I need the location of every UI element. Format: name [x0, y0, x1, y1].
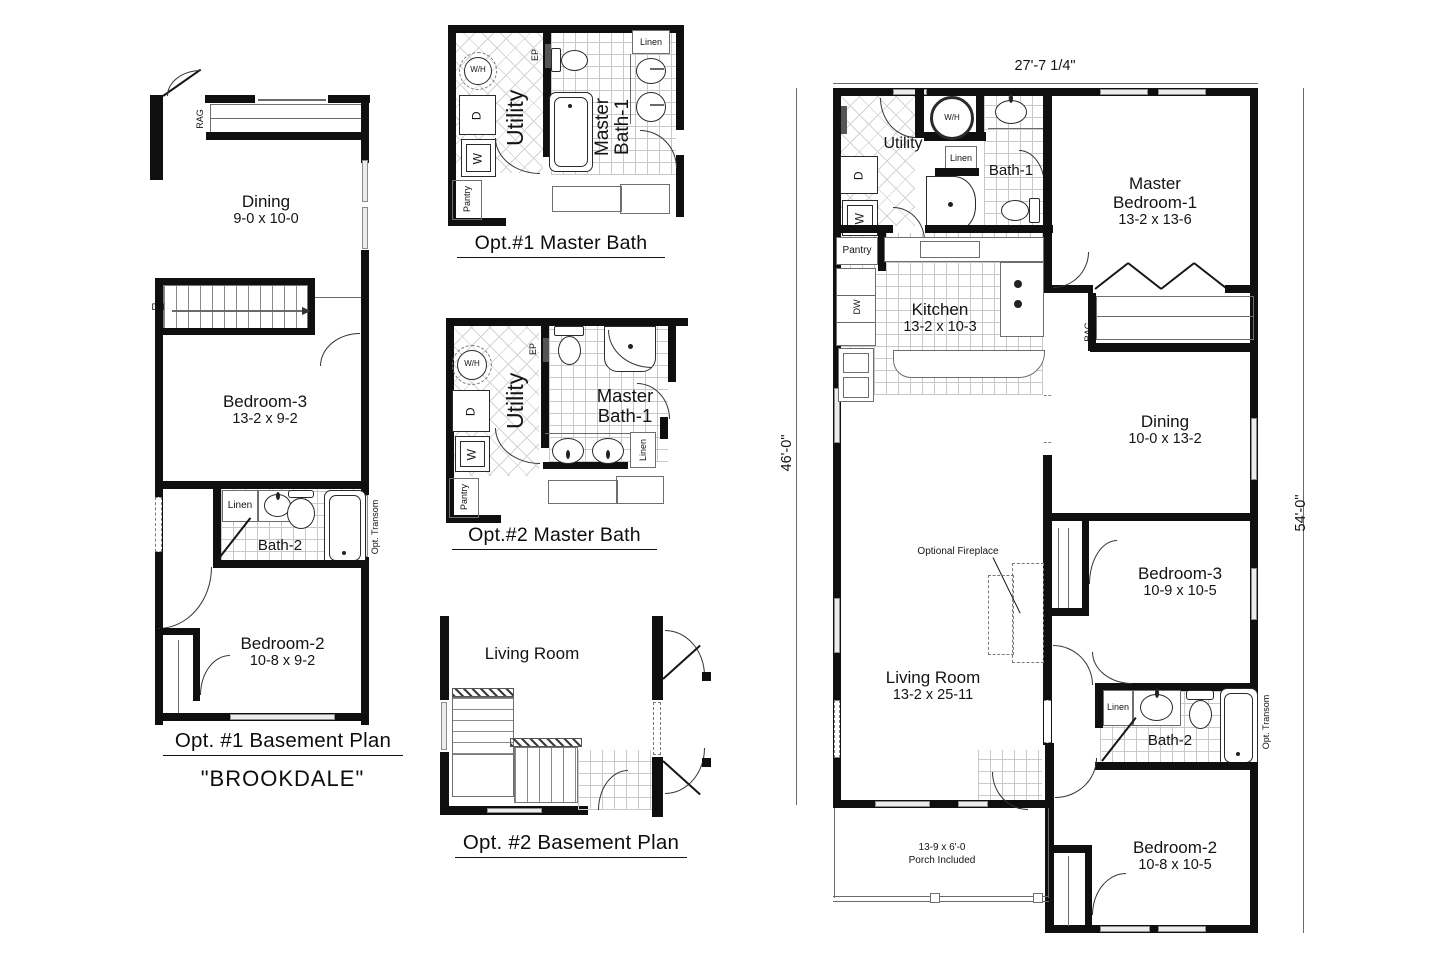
- sink-icon: [636, 92, 666, 122]
- faucet-icon: [276, 492, 280, 500]
- bath2-label: Bath-2: [1135, 733, 1205, 750]
- wall: [150, 95, 163, 180]
- sink-drain-icon: [1014, 280, 1022, 288]
- faucet-icon: [650, 104, 664, 106]
- wall: [1090, 343, 1258, 352]
- door-arc: [158, 567, 212, 629]
- window: [1100, 926, 1150, 932]
- wall: [155, 481, 368, 489]
- dim-line: [833, 83, 1258, 84]
- wall-opening: [834, 700, 840, 758]
- room-dims: 10-8 x 9-2: [215, 653, 350, 669]
- dim-line: [796, 88, 797, 805]
- sink-icon: [636, 58, 666, 84]
- wall-opening: [653, 702, 661, 755]
- stairs: [163, 285, 308, 331]
- wall-opening: [1044, 700, 1051, 743]
- master-bedroom-label: Master Bedroom-1 13-2 x 13-6: [1095, 174, 1215, 228]
- window: [1251, 418, 1257, 480]
- faucet-icon: [606, 450, 610, 459]
- porch-edge: [834, 808, 835, 898]
- wall: [446, 318, 688, 326]
- bifold-door-leaf: [1094, 262, 1128, 289]
- hall-counter: [548, 480, 618, 504]
- wall: [1043, 608, 1089, 616]
- wall: [1095, 688, 1103, 728]
- wall-opening: [1044, 395, 1051, 443]
- room-name-line: Master: [1095, 174, 1215, 193]
- wall: [440, 616, 449, 700]
- window: [834, 598, 840, 653]
- hall-counter: [620, 184, 670, 214]
- mb2-title: Opt.#2 Master Bath: [452, 524, 657, 550]
- room-dims: 9-0 x 10-0: [206, 211, 326, 227]
- door-arc: [1055, 758, 1097, 798]
- counter-line: [630, 54, 631, 124]
- wall: [676, 155, 684, 217]
- fireplace-outline: [988, 575, 1014, 655]
- wall: [205, 95, 255, 103]
- door-arc: [665, 748, 705, 794]
- window: [958, 801, 988, 807]
- wall: [448, 25, 456, 175]
- opt-transom-label: Opt. Transom: [370, 497, 380, 557]
- floor-plan-sheet: RAG Dining 9-0 x 10-0 DN Bedroom-3 13-2 …: [0, 0, 1440, 960]
- faucet-icon: [1155, 688, 1159, 698]
- toilet-icon: [1189, 700, 1212, 729]
- porch-label: 13-9 x 6'-0 Porch Included: [888, 842, 996, 867]
- room-dims: 10-9 x 10-5: [1115, 583, 1245, 599]
- wall: [160, 628, 200, 635]
- room-name-line: Bedroom-1: [1095, 193, 1215, 212]
- hall-counter: [616, 476, 664, 504]
- stairs-arrow-line: [172, 310, 304, 312]
- rag-label: RAG: [195, 102, 205, 136]
- wh-label: W/H: [930, 114, 974, 123]
- living-room-label: Living Room: [472, 644, 592, 663]
- bedroom2-label: Bedroom-2 10-8 x 10-5: [1110, 838, 1240, 873]
- room-name-line: Master: [593, 72, 613, 182]
- wall: [652, 616, 663, 700]
- room-name: Bedroom-2: [215, 634, 350, 653]
- door-jamb: [702, 672, 711, 681]
- door-arc: [1089, 540, 1117, 584]
- window: [230, 714, 335, 720]
- counter-line: [837, 322, 875, 323]
- bath2-label: Bath-2: [245, 538, 315, 555]
- wall: [206, 132, 366, 140]
- bedroom3-label: Bedroom-3 10-9 x 10-5: [1115, 564, 1245, 599]
- room-dims: 10-0 x 13-2: [1105, 431, 1225, 447]
- wall: [1043, 285, 1093, 293]
- dining-room-label: Dining 10-0 x 13-2: [1105, 412, 1225, 447]
- wh-label: W/H: [457, 360, 487, 369]
- wall: [925, 225, 1053, 233]
- toilet-tank-icon: [551, 48, 561, 72]
- bp1-title: Opt. #1 Basement Plan: [163, 729, 403, 756]
- wall: [1250, 88, 1258, 933]
- door-arc: [320, 333, 360, 366]
- counter: [210, 104, 363, 134]
- bedroom3-label: Bedroom-3 13-2 x 9-2: [205, 392, 325, 427]
- wall: [915, 88, 924, 138]
- wall: [543, 462, 628, 469]
- wall: [361, 557, 369, 725]
- counter: [1096, 296, 1254, 340]
- room-dims: 13-2 x 10-3: [885, 319, 995, 335]
- wall: [213, 560, 368, 568]
- toilet-icon: [561, 50, 588, 71]
- dim-right-label: 54'-0": [1293, 483, 1309, 543]
- window: [1100, 89, 1148, 95]
- door-arc: [893, 207, 925, 241]
- bp2-title: Opt. #2 Basement Plan: [455, 831, 687, 858]
- porch-post: [1033, 893, 1043, 903]
- bifold-door-leaf: [1193, 262, 1227, 289]
- dryer-label: D: [470, 106, 483, 126]
- stair-wall-hatch: [510, 738, 582, 747]
- window: [441, 702, 447, 750]
- porch-edge: [1048, 808, 1049, 898]
- wall: [155, 328, 315, 335]
- wall: [935, 168, 979, 176]
- room-name: Dining: [1105, 412, 1225, 431]
- room-dims: 13-2 x 9-2: [205, 411, 325, 427]
- closet-rod: [1068, 528, 1069, 608]
- wall: [1045, 743, 1054, 933]
- window: [362, 160, 368, 202]
- window: [1158, 926, 1206, 932]
- fireplace-outline: [1012, 563, 1044, 663]
- wall: [361, 95, 369, 163]
- electrical-panel-icon: [841, 106, 847, 134]
- wall: [1050, 845, 1092, 853]
- wall: [833, 225, 893, 233]
- wall: [652, 757, 663, 817]
- wh-label: W/H: [464, 66, 492, 75]
- utility-label: Utility: [868, 135, 938, 153]
- tub-drain-icon: [568, 104, 572, 108]
- wall: [361, 250, 369, 495]
- rag-label: RAG: [1083, 317, 1093, 347]
- sink-drain-icon: [1014, 300, 1022, 308]
- faucet-icon: [650, 68, 664, 70]
- bifold-door-leaf: [1127, 262, 1161, 289]
- mb1-title: Opt.#1 Master Bath: [457, 232, 665, 258]
- counter-line: [988, 128, 1044, 129]
- wall: [976, 88, 984, 140]
- sink-icon: [995, 100, 1027, 124]
- dim-left-label: 46'-0": [779, 423, 795, 483]
- door-arc: [1053, 252, 1089, 288]
- living-room-label: Living Room 13-2 x 25-11: [868, 668, 998, 703]
- pantry-label: Pantry: [462, 177, 472, 221]
- wall: [1043, 88, 1052, 293]
- ep-label: EP: [528, 337, 538, 361]
- door-jamb: [702, 758, 711, 767]
- linen-label: Linen: [1103, 702, 1133, 712]
- closet-rod: [1068, 856, 1069, 926]
- room-name: Bedroom-2: [1110, 838, 1240, 857]
- model-name: "BROOKDALE": [175, 766, 390, 792]
- kitchen-label: Kitchen 13-2 x 10-3: [885, 300, 995, 335]
- stairs: [514, 747, 578, 803]
- room-name: Bedroom-3: [205, 392, 325, 411]
- wall: [676, 25, 684, 130]
- stair-outline: [452, 697, 514, 797]
- toilet-icon: [558, 336, 581, 365]
- door-arc: [1092, 652, 1132, 684]
- counter-line: [545, 433, 630, 434]
- tub-drain-icon: [342, 551, 346, 555]
- sink-icon: [1140, 694, 1173, 721]
- bedroom2-label: Bedroom-2 10-8 x 9-2: [215, 634, 350, 669]
- opt-transom-label: Opt. Transom: [1261, 692, 1271, 752]
- range-burner: [843, 377, 869, 398]
- wall: [440, 752, 449, 814]
- wall-opening: [155, 497, 162, 552]
- toilet-icon: [287, 498, 315, 529]
- linen-label: Linen: [632, 37, 670, 47]
- hall-counter: [552, 186, 622, 212]
- wall: [668, 318, 676, 382]
- counter-line: [211, 118, 362, 119]
- door-arc: [200, 655, 230, 695]
- pantry-label: Pantry: [459, 475, 469, 519]
- shower-drain-icon: [948, 202, 953, 207]
- dishwasher-label: DW: [852, 294, 862, 320]
- counter: [1000, 262, 1044, 337]
- toilet-tank-icon: [1029, 198, 1040, 223]
- counter-line: [1097, 316, 1253, 317]
- toilet-tank-icon: [288, 490, 314, 498]
- dim-width-label: 27'-7 1/4": [960, 58, 1130, 74]
- faucet-icon: [566, 450, 570, 459]
- bifold-door-leaf: [1160, 262, 1194, 289]
- room-name: Bedroom-3: [1115, 564, 1245, 583]
- porch-edge: [833, 896, 1049, 897]
- wall: [1050, 925, 1258, 933]
- room-name: Living Room: [868, 668, 998, 687]
- stair-wall-hatch: [452, 688, 514, 697]
- porch-note: Porch Included: [888, 855, 996, 868]
- toilet-icon: [1001, 200, 1029, 221]
- ep-label: EP: [530, 43, 540, 67]
- porch-post: [930, 893, 940, 903]
- porch-edge: [833, 901, 1049, 902]
- linen-label: Linen: [945, 153, 977, 163]
- wall: [1043, 513, 1258, 521]
- dining-room-label: Dining 9-0 x 10-0: [206, 192, 326, 227]
- closet-rod: [178, 640, 179, 715]
- closet-rod: [1058, 528, 1059, 608]
- room-name: Dining: [206, 192, 326, 211]
- optional-fireplace-label: Optional Fireplace: [903, 546, 1013, 557]
- door-arc: [167, 70, 201, 96]
- range-burner: [843, 353, 869, 373]
- faucet-icon: [1009, 94, 1013, 103]
- wall: [1082, 521, 1089, 613]
- pantry-label: Pantry: [836, 245, 878, 256]
- tub-drain-icon: [1236, 752, 1240, 756]
- shower-drain-icon: [628, 344, 633, 349]
- arrow-head-icon: [302, 307, 311, 315]
- washer-label: W: [465, 445, 478, 465]
- master-bath-label: Master Bath-1: [593, 72, 633, 182]
- wall: [1095, 762, 1258, 770]
- room-name: Kitchen: [885, 300, 995, 319]
- electrical-panel-icon: [543, 338, 549, 362]
- room-dims: 10-8 x 10-5: [1110, 857, 1240, 873]
- dryer-label: D: [464, 402, 477, 422]
- island-counter: [893, 350, 1045, 378]
- window: [1158, 89, 1206, 95]
- porch-dims: 13-9 x 6'-0: [888, 842, 996, 855]
- linen-label: Linen: [638, 432, 648, 468]
- shelf-line: [315, 297, 361, 298]
- window: [362, 207, 368, 249]
- window: [875, 801, 930, 807]
- door-arc: [1053, 645, 1093, 685]
- window: [1251, 568, 1257, 620]
- wall: [193, 635, 200, 701]
- washer-label: W: [471, 149, 484, 169]
- window: [487, 808, 542, 813]
- wall: [155, 278, 315, 285]
- room-dims: 13-2 x 13-6: [1095, 212, 1215, 228]
- wall: [1225, 285, 1258, 293]
- room-dims: 13-2 x 25-11: [868, 687, 998, 703]
- wall: [1085, 853, 1092, 929]
- toilet-tank-icon: [1186, 690, 1214, 700]
- linen-label: Linen: [222, 500, 258, 511]
- door-arc: [1092, 873, 1126, 915]
- window: [258, 99, 326, 101]
- cooktop: [920, 241, 980, 258]
- dryer-label: D: [852, 166, 865, 186]
- toilet-tank-icon: [554, 326, 584, 336]
